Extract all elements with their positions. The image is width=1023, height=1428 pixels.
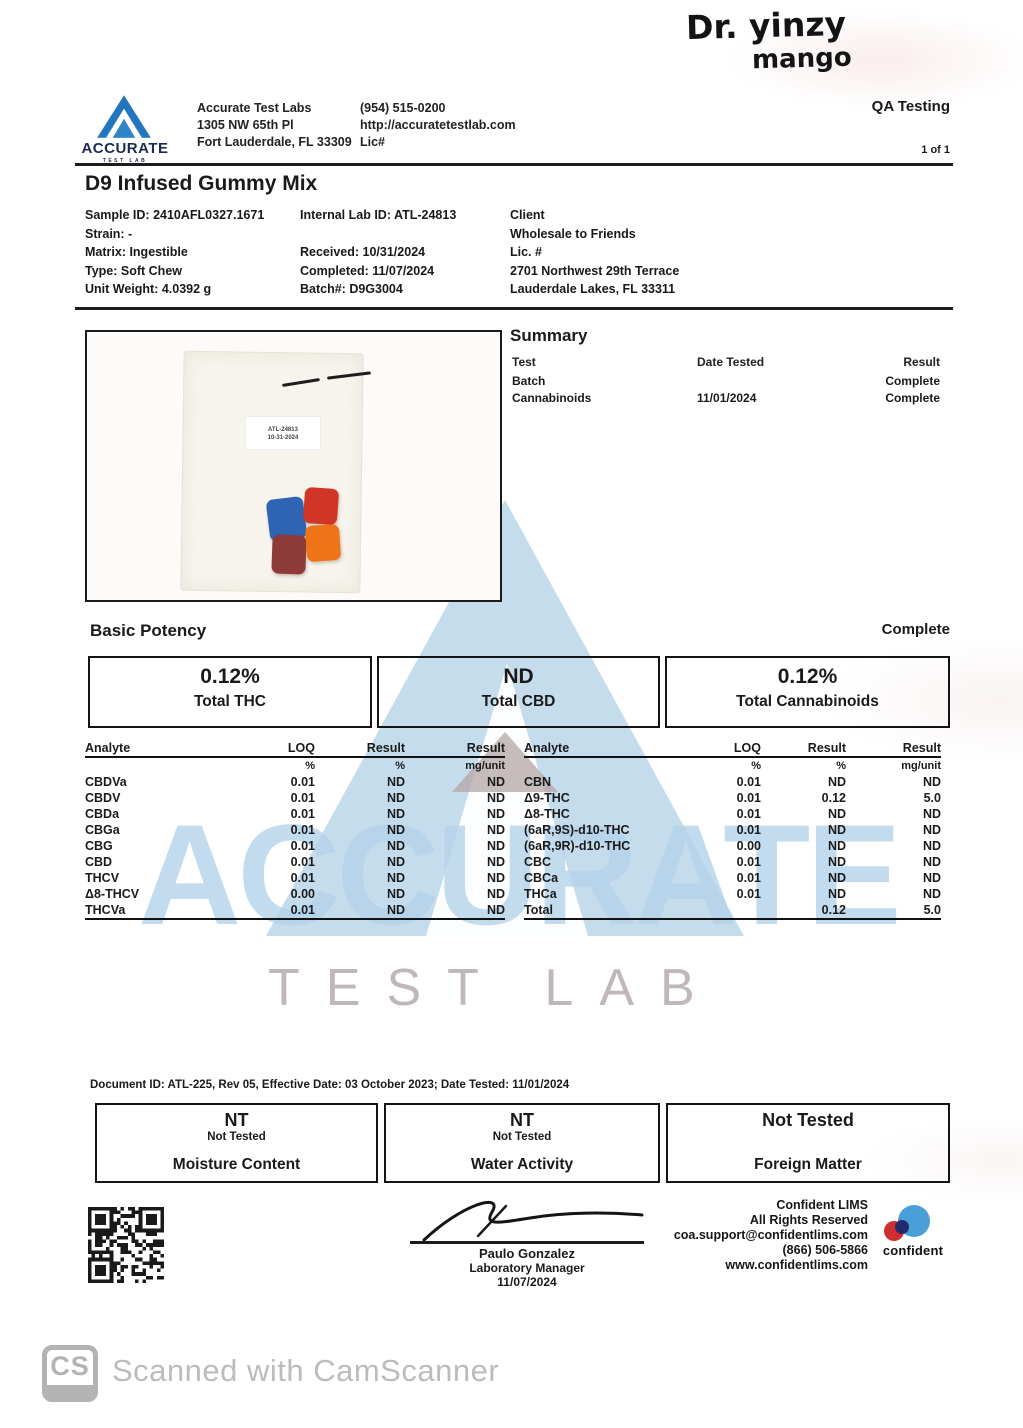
- analyte-row: (6aR,9R)-d10-THC0.00NDND: [524, 838, 941, 854]
- water-activity-value: NT: [386, 1110, 658, 1131]
- client-address2: Lauderdale Lakes, FL 33311: [510, 280, 679, 299]
- total-thc-box: 0.12% Total THC: [88, 656, 372, 728]
- analyte-cell-loq: 0.01: [235, 791, 315, 805]
- accurate-lab-logo-icon: [96, 94, 152, 139]
- moisture-label: Moisture Content: [97, 1156, 376, 1174]
- analyte-cell-mg: ND: [405, 887, 505, 901]
- analyte-cell-analyte: CBC: [524, 855, 684, 869]
- total-cbd-label: Total CBD: [379, 693, 658, 711]
- total-thc-value: 0.12%: [90, 665, 370, 689]
- col-result-mg: Result: [846, 741, 941, 755]
- sample-photo: ATL-24813 10-31-2024: [85, 330, 502, 602]
- total-thc-label: Total THC: [90, 693, 370, 711]
- summary-row-result: Complete: [800, 391, 940, 405]
- analyte-row: CBD0.01NDND: [85, 854, 505, 870]
- summary-col-date: Date Tested: [697, 355, 764, 369]
- analyte-cell-pct: ND: [761, 807, 846, 821]
- analyte-row: THCV0.01NDND: [85, 870, 505, 886]
- unit-mg: mg/unit: [846, 760, 941, 772]
- sample-bag-label: ATL-24813 10-31-2024: [245, 416, 321, 450]
- analyte-cell-mg: ND: [405, 903, 505, 917]
- analyte-row: CBGa0.01NDND: [85, 822, 505, 838]
- analyte-cell-analyte: Δ8-THCV: [85, 887, 235, 901]
- blank-line: [300, 225, 456, 244]
- summary-col-test: Test: [512, 355, 536, 369]
- analyte-row: Total0.125.0: [524, 902, 941, 918]
- analyte-row: CBC0.01NDND: [524, 854, 941, 870]
- unit-mg: mg/unit: [405, 760, 505, 772]
- analyte-row: CBCa0.01NDND: [524, 870, 941, 886]
- analyte-row: CBDV0.01NDND: [85, 790, 505, 806]
- table-header: Analyte LOQ Result Result: [85, 739, 505, 758]
- qr-code: [88, 1207, 164, 1283]
- red-gummy: [303, 487, 339, 525]
- analyte-cell-pct: ND: [761, 887, 846, 901]
- analyte-row: CBDa0.01NDND: [85, 806, 505, 822]
- analyte-cell-analyte: CBD: [85, 855, 235, 869]
- analyte-cell-mg: 5.0: [846, 903, 941, 917]
- col-result-pct: Result: [761, 741, 846, 755]
- total-cannabinoids-value: 0.12%: [667, 665, 948, 689]
- summary-row-date: 11/01/2024: [697, 391, 756, 405]
- analyte-cell-pct: ND: [315, 871, 405, 885]
- foreign-matter-label: Foreign Matter: [668, 1156, 948, 1174]
- testlab-watermark-text: TEST LAB: [268, 958, 721, 1018]
- page-count: 1 of 1: [820, 144, 950, 156]
- analyte-cell-pct: ND: [315, 855, 405, 869]
- analyte-cell-analyte: CBG: [85, 839, 235, 853]
- analyte-cell-loq: 0.01: [684, 855, 761, 869]
- analyte-cell-pct: ND: [315, 775, 405, 789]
- analyte-cell-loq: 0.01: [235, 823, 315, 837]
- water-activity-label: Water Activity: [386, 1156, 658, 1174]
- analyte-cell-pct: ND: [315, 887, 405, 901]
- analyte-row: Δ9-THC0.010.125.0: [524, 790, 941, 806]
- analyte-cell-pct: ND: [761, 855, 846, 869]
- total-cbd-value: ND: [379, 665, 658, 689]
- analyte-cell-analyte: (6aR,9S)-d10-THC: [524, 823, 684, 837]
- lab-name: Accurate Test Labs: [197, 100, 352, 117]
- analyte-cell-pct: ND: [315, 791, 405, 805]
- summary-heading: Summary: [510, 326, 587, 346]
- matrix: Matrix: Ingestible: [85, 243, 264, 262]
- col-analyte: Analyte: [524, 741, 684, 755]
- document-id-line: Document ID: ATL-225, Rev 05, Effective …: [90, 1079, 569, 1091]
- table-units: % % mg/unit: [524, 758, 941, 774]
- received-date: Received: 10/31/2024: [300, 243, 456, 262]
- lab-phone: (954) 515-0200: [360, 100, 516, 117]
- section-divider: [75, 307, 953, 310]
- sample-info-col2: Internal Lab ID: ATL-24813 Received: 10/…: [300, 206, 456, 299]
- analyte-row: THCVa0.01NDND: [85, 902, 505, 918]
- analyte-cell-loq: 0.01: [684, 823, 761, 837]
- analyte-cell-loq: 0.01: [235, 807, 315, 821]
- analyte-cell-mg: ND: [405, 823, 505, 837]
- lab-website: http://accuratetestlab.com: [360, 117, 516, 134]
- analyte-cell-mg: ND: [846, 887, 941, 901]
- unit-pct: %: [761, 760, 846, 772]
- analyte-cell-analyte: THCa: [524, 887, 684, 901]
- analyte-cell-mg: ND: [405, 839, 505, 853]
- total-cbd-box: ND Total CBD: [377, 656, 660, 728]
- analyte-cell-analyte: THCV: [85, 871, 235, 885]
- analyte-cell-loq: 0.00: [684, 839, 761, 853]
- col-analyte: Analyte: [85, 741, 235, 755]
- lims-phone: (866) 506-5866: [600, 1243, 868, 1258]
- lims-rights: All Rights Reserved: [600, 1213, 868, 1228]
- analyte-table-right: Analyte LOQ Result Result % % mg/unit CB…: [524, 739, 941, 920]
- unit-pct: %: [315, 760, 405, 772]
- summary-row-test: Batch: [512, 374, 545, 388]
- analyte-table: Analyte LOQ Result Result % % mg/unit CB…: [85, 739, 941, 919]
- analyte-table-left: Analyte LOQ Result Result % % mg/unit CB…: [85, 739, 505, 920]
- analyte-row: CBN0.01NDND: [524, 774, 941, 790]
- analyte-cell-loq: 0.01: [684, 871, 761, 885]
- batch-number: Batch#: D9G3004: [300, 280, 456, 299]
- analyte-cell-pct: 0.12: [761, 791, 846, 805]
- analyte-cell-analyte: CBDVa: [85, 775, 235, 789]
- analyte-cell-pct: 0.12: [761, 903, 846, 917]
- analyte-cell-pct: ND: [315, 823, 405, 837]
- analyte-cell-mg: ND: [846, 871, 941, 885]
- analyte-cell-loq: 0.01: [235, 839, 315, 853]
- analyte-cell-loq: 0.01: [235, 903, 315, 917]
- signature-date: 11/07/2024: [410, 1275, 644, 1289]
- analyte-cell-loq: 0.01: [684, 887, 761, 901]
- client-address1: 2701 Northwest 29th Terrace: [510, 262, 679, 281]
- total-cannabinoids-label: Total Cannabinoids: [667, 693, 948, 711]
- analyte-cell-analyte: (6aR,9R)-d10-THC: [524, 839, 684, 853]
- moisture-note: Not Tested: [97, 1131, 376, 1143]
- analyte-cell-mg: ND: [405, 775, 505, 789]
- analyte-cell-loq: 0.01: [235, 775, 315, 789]
- camscanner-icon: CS: [42, 1345, 98, 1402]
- water-activity-box: NT Not Tested Water Activity: [384, 1103, 660, 1183]
- table-units: % % mg/unit: [85, 758, 505, 774]
- basic-potency-heading: Basic Potency: [90, 621, 206, 641]
- internal-lab-id: Internal Lab ID: ATL-24813: [300, 206, 456, 225]
- lims-email: coa.support@confidentlims.com: [600, 1228, 868, 1243]
- unit-pct: %: [235, 760, 315, 772]
- bag-label-date: 10-31-2024: [246, 434, 320, 442]
- analyte-cell-pct: ND: [761, 823, 846, 837]
- handwritten-note-line2: mango: [752, 43, 852, 76]
- analyte-cell-analyte: THCVa: [85, 903, 235, 917]
- qa-testing-label: QA Testing: [800, 98, 950, 115]
- sample-id: Sample ID: 2410AFL0327.1671: [85, 206, 264, 225]
- analyte-cell-analyte: CBDa: [85, 807, 235, 821]
- strain: Strain: -: [85, 225, 264, 244]
- analyte-cell-mg: ND: [846, 775, 941, 789]
- analyte-cell-pct: ND: [315, 903, 405, 917]
- analyte-cell-mg: ND: [846, 839, 941, 853]
- analyte-row: Δ8-THC0.01NDND: [524, 806, 941, 822]
- client-license: Lic. #: [510, 243, 679, 262]
- unit-weight: Unit Weight: 4.0392 g: [85, 280, 264, 299]
- analyte-cell-mg: ND: [405, 871, 505, 885]
- camscanner-text: Scanned with CamScanner: [112, 1353, 499, 1389]
- client-info-col: Client Wholesale to Friends Lic. # 2701 …: [510, 206, 679, 299]
- analyte-cell-analyte: CBCa: [524, 871, 684, 885]
- analyte-cell-mg: ND: [846, 855, 941, 869]
- analyte-cell-mg: ND: [846, 823, 941, 837]
- camscanner-icon-letters: CS: [47, 1350, 93, 1383]
- confident-logo-text: confident: [880, 1243, 946, 1258]
- analyte-row: THCa0.01NDND: [524, 886, 941, 902]
- maroon-gummy: [271, 534, 306, 574]
- analyte-cell-mg: ND: [405, 807, 505, 821]
- lab-address1: 1305 NW 65th Pl: [197, 117, 352, 134]
- table-header: Analyte LOQ Result Result: [524, 739, 941, 758]
- col-loq: LOQ: [684, 741, 761, 755]
- bag-label-id: ATL-24813: [246, 426, 320, 434]
- table-right-rows: CBN0.01NDNDΔ9-THC0.010.125.0Δ8-THC0.01ND…: [524, 774, 941, 920]
- analyte-cell-loq: 0.00: [235, 887, 315, 901]
- analyte-row: Δ8-THCV0.00NDND: [85, 886, 505, 902]
- col-result-mg: Result: [405, 741, 505, 755]
- col-loq: LOQ: [235, 741, 315, 755]
- analyte-cell-loq: 0.01: [235, 871, 315, 885]
- analyte-cell-mg: ND: [846, 807, 941, 821]
- table-left-rows: CBDVa0.01NDNDCBDV0.01NDNDCBDa0.01NDNDCBG…: [85, 774, 505, 920]
- unit-pct: %: [684, 760, 761, 772]
- logo-wordmark: ACCURATE: [80, 140, 170, 157]
- analyte-cell-loq: 0.01: [684, 807, 761, 821]
- foreign-matter-value: Not Tested: [668, 1110, 948, 1131]
- summary-row-test: Cannabinoids: [512, 391, 591, 405]
- lab-address2: Fort Lauderdale, FL 33309: [197, 134, 352, 151]
- analyte-cell-analyte: Total: [524, 903, 684, 917]
- summary-col-result: Result: [800, 355, 940, 369]
- analyte-cell-analyte: CBDV: [85, 791, 235, 805]
- camscanner-icon-strip: [47, 1385, 93, 1397]
- analyte-cell-pct: ND: [761, 871, 846, 885]
- lims-name: Confident LIMS: [600, 1198, 868, 1213]
- analyte-cell-analyte: Δ8-THC: [524, 807, 684, 821]
- client-name: Wholesale to Friends: [510, 225, 679, 244]
- water-activity-note: Not Tested: [386, 1131, 658, 1143]
- analyte-cell-pct: ND: [761, 839, 846, 853]
- analyte-cell-pct: ND: [315, 839, 405, 853]
- lims-website: www.confidentlims.com: [600, 1258, 868, 1273]
- completed-date: Completed: 11/07/2024: [300, 262, 456, 281]
- analyte-cell-analyte: CBN: [524, 775, 684, 789]
- client-label: Client: [510, 206, 679, 225]
- analyte-cell-pct: ND: [761, 775, 846, 789]
- header-divider: [75, 163, 953, 166]
- analyte-cell-loq: 0.01: [684, 791, 761, 805]
- analyte-row: (6aR,9S)-d10-THC0.01NDND: [524, 822, 941, 838]
- analyte-cell-mg: 5.0: [846, 791, 941, 805]
- moisture-content-box: NT Not Tested Moisture Content: [95, 1103, 378, 1183]
- sample-info-col1: Sample ID: 2410AFL0327.1671 Strain: - Ma…: [85, 206, 264, 299]
- foreign-matter-box: Not Tested Foreign Matter: [666, 1103, 950, 1183]
- total-cannabinoids-box: 0.12% Total Cannabinoids: [665, 656, 950, 728]
- analyte-cell-analyte: Δ9-THC: [524, 791, 684, 805]
- analyte-cell-analyte: CBGa: [85, 823, 235, 837]
- analyte-cell-mg: ND: [405, 855, 505, 869]
- potency-status: Complete: [800, 621, 950, 638]
- lab-license: Lic#: [360, 134, 516, 151]
- report-title: D9 Infused Gummy Mix: [85, 172, 317, 196]
- summary-row-result: Complete: [800, 374, 940, 388]
- analyte-row: CBG0.01NDND: [85, 838, 505, 854]
- handwritten-note-line1: Dr. yinzy: [686, 4, 847, 47]
- scanned-lab-report: ACCURATE TEST LAB Dr. yinzy mango ACCURA…: [0, 0, 1023, 1428]
- col-result-pct: Result: [315, 741, 405, 755]
- type: Type: Soft Chew: [85, 262, 264, 281]
- analyte-cell-loq: 0.01: [684, 775, 761, 789]
- moisture-value: NT: [97, 1110, 376, 1131]
- analyte-cell-mg: ND: [405, 791, 505, 805]
- orange-gummy: [305, 524, 341, 562]
- analyte-row: CBDVa0.01NDND: [85, 774, 505, 790]
- analyte-cell-pct: ND: [315, 807, 405, 821]
- analyte-cell-loq: 0.01: [235, 855, 315, 869]
